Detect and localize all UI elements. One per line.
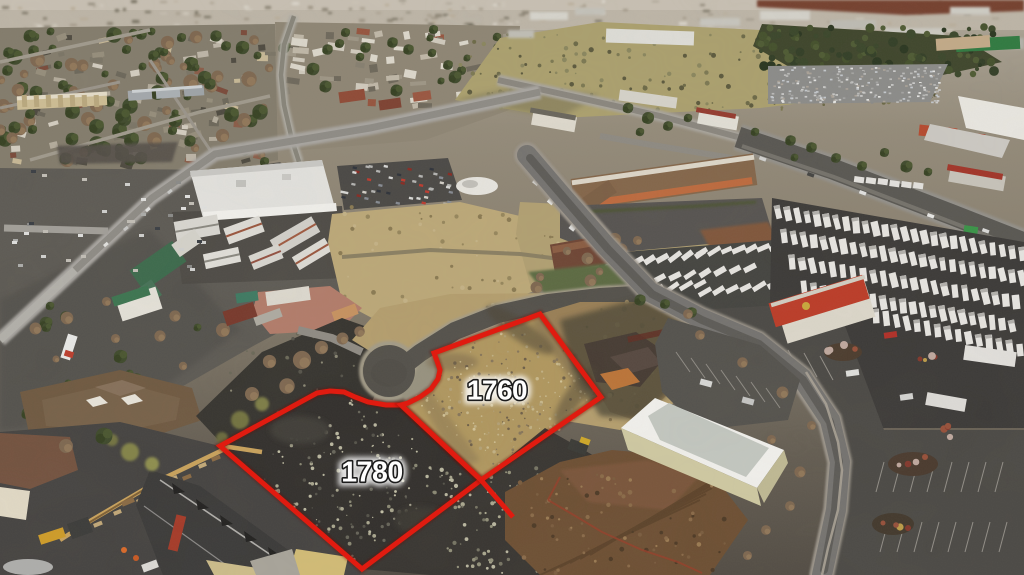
svg-text:1780: 1780 [341, 457, 402, 489]
svg-text:1760: 1760 [467, 375, 527, 406]
